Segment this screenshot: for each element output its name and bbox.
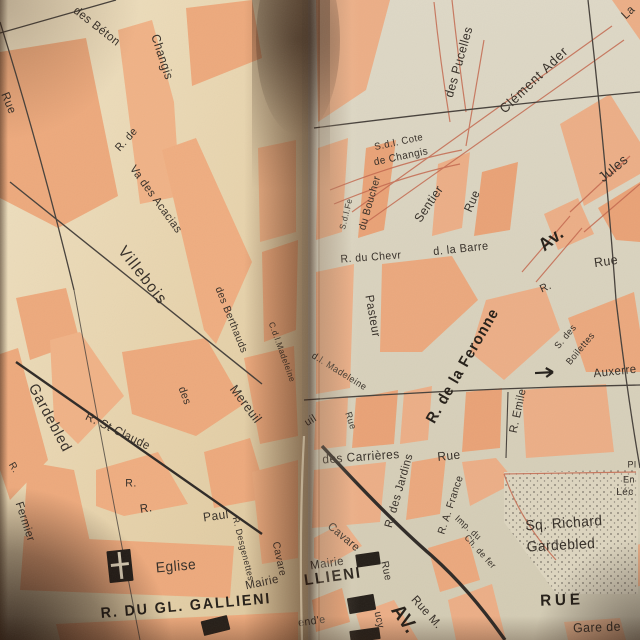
street-label-s-d-l-fe: S.d.l.Fe [338, 198, 354, 231]
street-label-r-des-jardins: R. des Jardins [384, 453, 416, 530]
street-label-r: R. [139, 501, 153, 515]
street-label-rue: Rue [379, 560, 393, 581]
street-label-gardebled: Gardebled [26, 381, 75, 454]
street-label-l-c: Léc [616, 487, 634, 498]
street-label-fermier: Fermier [12, 501, 36, 544]
street-label-cl-ment-ader: Clément Ader [497, 44, 570, 116]
building-icon [201, 615, 231, 636]
street-labels-layer: des BétonChangisRueR. deVa des AcaciasVi… [0, 0, 640, 640]
street-label-r-st-claude: R. St Claude [84, 410, 152, 452]
street-label-mereuil: Mereuil [228, 383, 265, 426]
street-label-jules: Jules [596, 152, 631, 184]
street-label-pl: Pl [628, 460, 637, 470]
street-label-r: R. [6, 461, 20, 475]
street-label-va-des-acacias: Va des Acacias [127, 164, 184, 236]
street-label-en: En [623, 475, 635, 485]
church-icon [106, 549, 133, 583]
street-label-paul: Paul [202, 508, 229, 524]
street-label-des-berthauds: des Berthauds [213, 285, 249, 354]
street-label-rue: Rue [593, 253, 619, 269]
street-label-eglise: Eglise [155, 558, 196, 576]
street-label-d-la-barre: d. la Barre [433, 241, 490, 258]
town-hall-icon [355, 551, 381, 567]
street-label-ch-de-fer: Ch. de fer [463, 533, 498, 570]
street-label-d-l-madeleine: d.l. Madeleine [310, 351, 368, 392]
street-label-c-d-l-madeleine: C.d.l.Madeleine [267, 321, 297, 383]
street-label-r-du-gl-gallieni: R. DU GL. GALLIENI [100, 591, 272, 621]
street-label-end-e: end'e [298, 615, 327, 630]
street-label-des-b-ton: des Béton [71, 4, 122, 48]
direction-arrow-icon [534, 365, 559, 379]
street-label-changis: Changis [149, 33, 175, 81]
street-label-r-de: R. de [114, 126, 140, 154]
street-label-rue: Rue [462, 188, 482, 213]
street-label-r: R. [539, 281, 554, 296]
street-label-sq-richard: Sq. Richard [525, 514, 603, 534]
street-label-av: Av. [535, 224, 567, 254]
street-label-r: R. [125, 479, 136, 490]
street-label-r-desgenettes: R. Desgenettes [231, 516, 256, 582]
map-photo: des BétonChangisRueR. deVa des AcaciasVi… [0, 0, 640, 640]
street-label-r-emile: R. Emile [509, 388, 530, 434]
street-label-uil: uil [303, 413, 319, 429]
street-label-rue: Rue [343, 411, 358, 431]
street-label-des-carri-res: des Carrières [322, 448, 400, 466]
street-label-du-boucher: du Boucher [357, 175, 382, 232]
street-label-r-du-chevr: R. du Chevr [340, 250, 402, 265]
street-label-cavare: Cavare [325, 521, 362, 554]
street-label-sentier: Sentier [412, 184, 445, 225]
street-label-pasteur: Pasteur [363, 294, 382, 338]
street-label-gardebled: Gardebled [526, 537, 595, 555]
street-label-des-pucelles: des Pucelles [443, 25, 475, 99]
street-label-la: La [619, 3, 637, 21]
street-label-rue: Rue [437, 449, 461, 464]
street-label-gare-de: Gare de [573, 620, 621, 635]
street-label-rue: RUE [540, 592, 584, 610]
street-label-rue: Rue [0, 90, 19, 115]
street-label-des: des [176, 386, 193, 407]
building-icon [347, 594, 376, 614]
street-label-auxerre: Auxerre [593, 363, 637, 379]
building-icon [349, 627, 380, 640]
street-label-villebois: Villebois [114, 244, 169, 308]
street-label-r-de-la-feronne: R. de la Feronne [424, 306, 502, 426]
